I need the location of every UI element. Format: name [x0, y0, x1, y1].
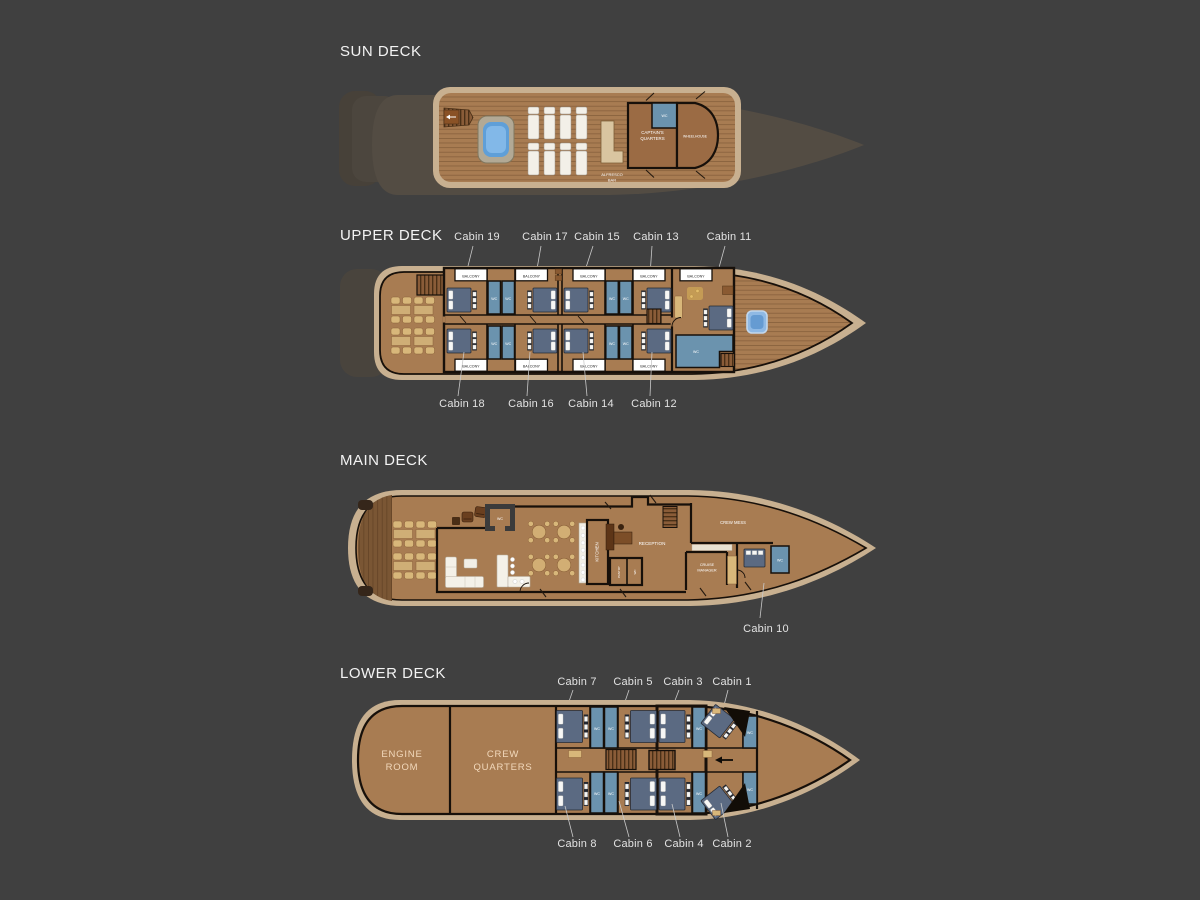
wc-label: WC	[747, 731, 753, 735]
wheelhouse-room: WHEELHOUSE	[677, 103, 718, 168]
callout-cabin-7: Cabin 7	[557, 676, 596, 688]
balcony-label: BALCONY	[462, 274, 480, 278]
pantry-label: PANTRY	[617, 566, 621, 578]
locker-icon	[728, 556, 737, 584]
buffet-counter-icon	[579, 523, 587, 583]
upper-deck-plan: Cabin 19 Cabin 17 Cabin 15 Cabin 13 Cabi…	[330, 226, 885, 412]
alfresco-bar-label-1: ALFRESCO	[601, 172, 623, 177]
wc-label: WC	[696, 727, 702, 731]
callout-cabin-4: Cabin 4	[664, 838, 703, 850]
deck-plan-page: SUN DECK UPPER DECK MAIN DECK LOWER DECK	[0, 0, 1200, 900]
wheelhouse-label: WHEELHOUSE	[683, 135, 708, 139]
wc-label: WC	[594, 727, 600, 731]
balcony-label: BALCONY	[687, 274, 705, 278]
reception-label: RECEPTION	[639, 541, 666, 546]
wc-label: WC	[608, 727, 614, 731]
mid-stairs-icon	[649, 751, 675, 770]
callout-cabin-15: Cabin 15	[574, 231, 620, 243]
cruise-manager-label-2: MANAGER	[697, 569, 716, 573]
corridor-stairs-icon	[606, 750, 636, 770]
cabin-19-bed-icon	[447, 288, 477, 312]
balcony-label: BALCONY	[640, 274, 658, 278]
callout-cabin-11: Cabin 11	[707, 231, 752, 243]
bow-deck	[747, 311, 767, 333]
cabin-10-bed-icon	[744, 549, 765, 567]
callout-cabin-16: Cabin 16	[508, 398, 554, 410]
sun-deck-wc-room: WC	[652, 103, 677, 128]
crew-quarters-label-2: QUARTERS	[473, 762, 532, 773]
kitchen-label: KITCHEN	[595, 542, 600, 561]
wc-label: WC	[777, 559, 783, 563]
balcony-label: BALCONY	[640, 365, 658, 369]
cabin-18-bed-icon	[447, 329, 477, 353]
suite-stairs-icon	[721, 354, 735, 367]
engine-room-label-1: ENGINE	[381, 749, 422, 760]
sun-deck-title: SUN DECK	[340, 43, 422, 60]
wc-label: WC	[693, 350, 699, 354]
wc-label: WC	[633, 569, 637, 575]
cabin-16-bed-icon	[527, 329, 557, 353]
wc-label: WC	[747, 788, 753, 792]
engine-room-label-2: ROOM	[386, 762, 419, 773]
callout-cabin-18: Cabin 18	[439, 398, 485, 410]
captains-quarters-label-2: QUARTERS	[640, 136, 664, 141]
wc-label: WC	[623, 342, 629, 346]
balcony-label: BALCONY	[462, 365, 480, 369]
cabin-11-bed-icon	[703, 306, 733, 330]
callout-cabin-6: Cabin 6	[613, 838, 652, 850]
cabin-14-bed-icon	[564, 329, 594, 353]
callout-cabin-17: Cabin 17	[522, 231, 568, 243]
main-deck-plan: WC	[330, 448, 885, 640]
callout-cabin-3: Cabin 3	[663, 676, 702, 688]
callout-cabin-19: Cabin 19	[454, 231, 500, 243]
sun-deck-plan: ALFRESCO BAR CAPTAIN'S QUARTERS WC WHEEL…	[335, 80, 880, 202]
balcony-label: BALCONY	[580, 365, 598, 369]
balcony-label: BALCONY	[523, 274, 541, 278]
cabin-13-bed-icon	[641, 288, 671, 312]
wc-label: WC	[623, 297, 629, 301]
wc-label: WC	[696, 792, 702, 796]
callout-cabin-8: Cabin 8	[557, 838, 596, 850]
sun-deck-stairs-icon	[444, 108, 473, 127]
sun-deck-wc-label: WC	[662, 114, 668, 118]
lower-deck-plan: Cabin 7 Cabin 5 Cabin 3 Cabin 1 ENGINE R…	[330, 664, 885, 854]
captains-quarters-label-1: CAPTAIN'S	[641, 130, 664, 135]
cabin-12-bed-icon	[641, 329, 671, 353]
wc-label: WC	[491, 342, 497, 346]
wc-label: WC	[608, 792, 614, 796]
wc-label: WC	[491, 297, 497, 301]
wc-label: WC	[505, 297, 511, 301]
wc-label: WC	[505, 342, 511, 346]
wc-label: WC	[594, 792, 600, 796]
cabin-17-bed-icon	[527, 288, 557, 312]
wc-label: WC	[497, 517, 503, 521]
upper-aft-stairs-icon	[417, 275, 444, 295]
callout-cabin-13: Cabin 13	[633, 231, 679, 243]
callout-cabin-2: Cabin 2	[712, 838, 751, 850]
crew-quarters-label-1: CREW	[487, 749, 519, 760]
tender-icon	[358, 500, 373, 510]
cabin-15-bed-icon	[564, 288, 594, 312]
corridor-stairs-icon	[647, 309, 661, 324]
wc-label: WC	[609, 297, 615, 301]
reception-stairs-icon	[663, 507, 677, 528]
wc-cubicle: WC	[485, 504, 515, 532]
cruise-manager-label-1: CRUISE	[700, 563, 715, 567]
balcony-label: BALCONY	[580, 274, 598, 278]
coffee-table-icon	[464, 559, 477, 568]
crew-mess-label: CREW MESS	[720, 520, 746, 525]
callout-cabin-5: Cabin 5	[613, 676, 652, 688]
callout-cabin-12: Cabin 12	[631, 398, 677, 410]
hot-tub-icon	[478, 116, 514, 163]
suite-sofa-icon	[675, 296, 683, 318]
tender-icon	[358, 586, 373, 596]
callout-cabin-10: Cabin 10	[743, 623, 789, 635]
alfresco-bar-label-2: BAR	[608, 178, 616, 183]
balcony-label: BALCONY	[523, 365, 541, 369]
wc-label: WC	[609, 342, 615, 346]
callout-cabin-1: Cabin 1	[712, 676, 751, 688]
callout-cabin-14: Cabin 14	[568, 398, 614, 410]
